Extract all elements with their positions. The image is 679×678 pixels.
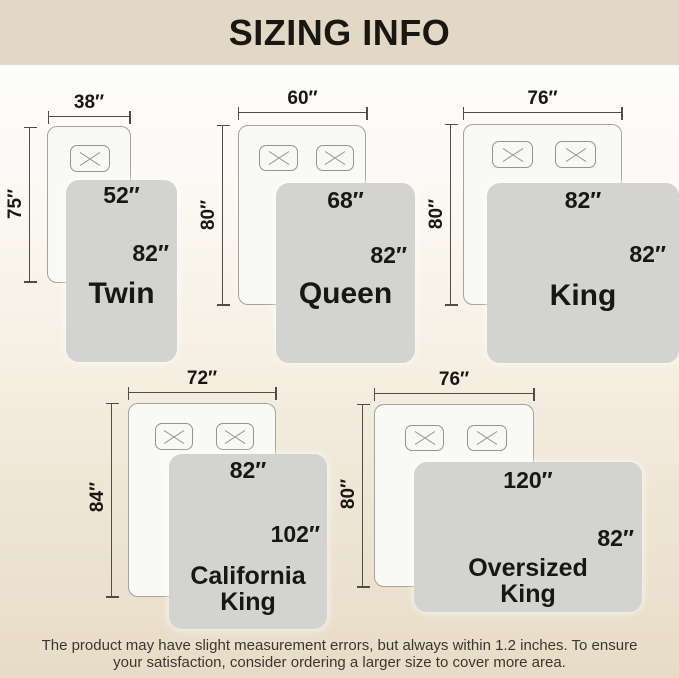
blanket-overlay: 120″ 82″ Oversized King	[414, 462, 642, 612]
mattress-width-label: 76″	[374, 369, 534, 391]
size-name: King	[487, 281, 679, 312]
pillow-icon	[405, 425, 444, 451]
width-dimension-line	[128, 392, 276, 393]
mattress-length-label: 80″	[426, 199, 448, 229]
mattress-length-label: 84″	[87, 482, 109, 512]
blanket-overlay: 68″ 82″ Queen	[276, 183, 415, 363]
blanket-length-label: 82″	[629, 241, 666, 268]
length-dimension-line	[450, 124, 451, 305]
length-dimension-line	[362, 404, 363, 587]
blanket-width-label: 82″	[487, 187, 679, 214]
size-name: Oversized King	[414, 556, 642, 607]
blanket-length-label: 82″	[370, 242, 407, 269]
mattress-length-label: 75″	[5, 189, 27, 219]
mattress-width-label: 60″	[238, 88, 367, 110]
pillow-icon	[316, 145, 354, 171]
mattress-length-label: 80″	[338, 479, 360, 509]
disclaimer-text: The product may have slight measurement …	[0, 638, 679, 672]
width-dimension-line	[238, 112, 367, 113]
size-name: California King	[169, 564, 327, 615]
width-dimension-line	[48, 116, 130, 117]
size-name: Twin	[66, 279, 177, 310]
title-band: SIZING INFO	[0, 0, 679, 65]
blanket-length-label: 82″	[132, 240, 169, 267]
pillow-icon	[555, 141, 596, 168]
blanket-width-label: 82″	[169, 457, 327, 484]
length-dimension-line	[222, 125, 223, 305]
sizing-info-infographic: SIZING INFO 38″ 75″ 52″ 82″ Twin 60″ 80″…	[0, 0, 679, 678]
length-dimension-line	[29, 127, 30, 282]
pillow-icon	[216, 423, 254, 450]
pillow-icon	[70, 145, 110, 172]
blanket-overlay: 52″ 82″ Twin	[66, 180, 177, 362]
blanket-width-label: 120″	[414, 467, 642, 494]
pillow-icon	[492, 141, 533, 168]
pillow-icon	[155, 423, 193, 450]
blanket-width-label: 52″	[66, 182, 177, 209]
pillow-icon	[467, 425, 507, 451]
mattress-width-label: 76″	[463, 88, 622, 110]
page-title: SIZING INFO	[229, 12, 451, 54]
size-name: Queen	[276, 279, 415, 310]
blanket-overlay: 82″ 102″ California King	[169, 454, 327, 629]
width-dimension-line	[374, 393, 534, 394]
blanket-width-label: 68″	[276, 187, 415, 214]
blanket-length-label: 102″	[271, 521, 320, 548]
length-dimension-line	[111, 403, 112, 597]
mattress-width-label: 72″	[128, 368, 276, 390]
pillow-icon	[259, 145, 298, 171]
width-dimension-line	[463, 112, 622, 113]
mattress-length-label: 80″	[198, 200, 220, 230]
blanket-length-label: 82″	[597, 525, 634, 552]
mattress-width-label: 38″	[38, 92, 140, 114]
blanket-overlay: 82″ 82″ King	[487, 183, 679, 363]
